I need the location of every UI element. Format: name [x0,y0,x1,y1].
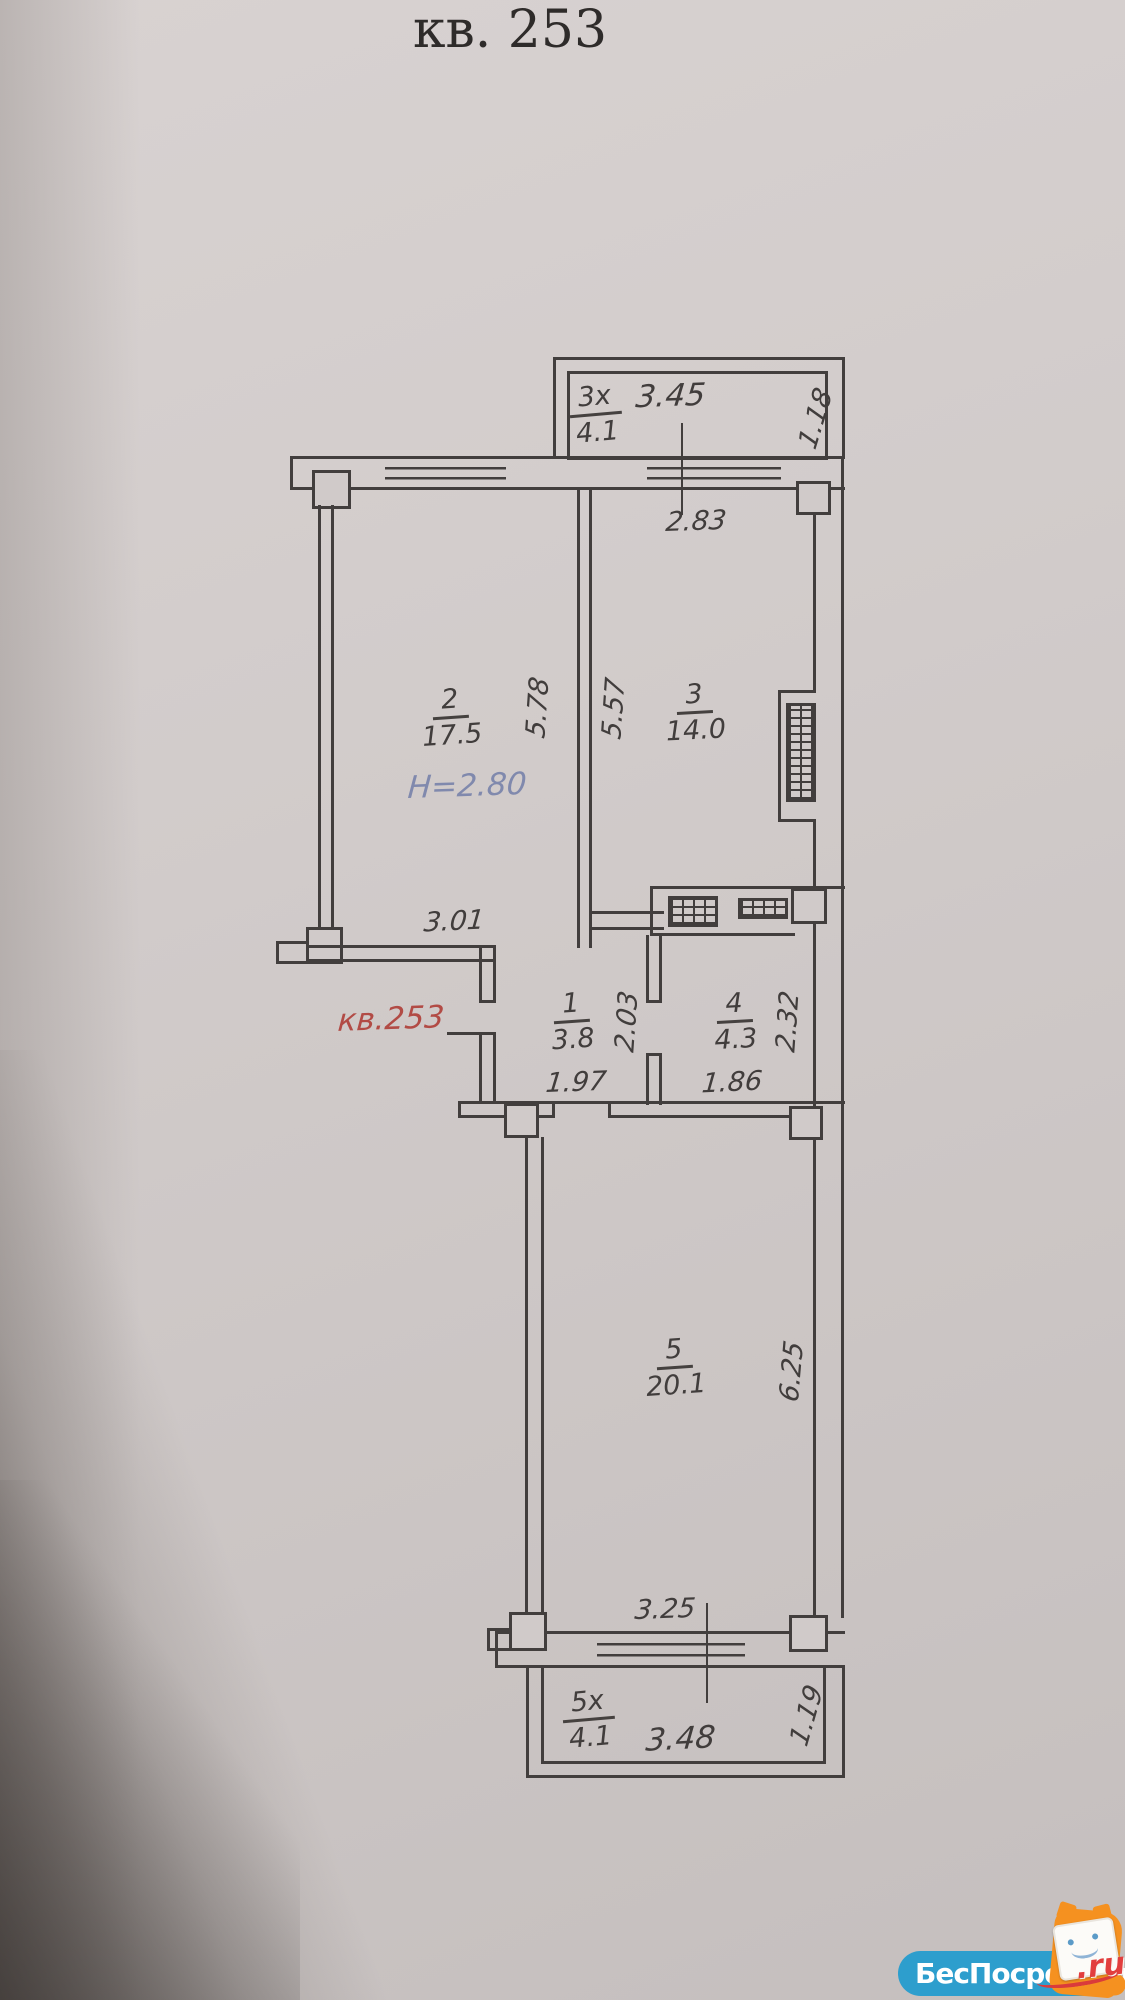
wall-h [526,1775,845,1778]
column [509,1612,547,1651]
balcony-area: 4.1 [563,413,631,450]
room-area: 4.3 [704,1022,768,1057]
wall-v [659,1055,662,1105]
wall-v [290,456,293,490]
door-jamb [552,1101,555,1118]
room-1-label: 1 3.8 [541,988,603,1057]
wall-v [526,1667,529,1777]
wall-v [589,490,592,948]
wall-v [318,505,321,930]
dimension-label: 2.03 [611,984,643,1059]
wall-tab [487,1628,512,1651]
room-area: 20.1 [638,1367,714,1403]
wall-v [331,505,334,930]
wall-v [646,935,649,1002]
room-number: 2 [431,685,468,721]
wall-v [479,1034,482,1104]
wall-v [650,886,653,936]
balcony-bottom-label: 5х 4.1 [553,1685,624,1755]
vent-shaft-grille [786,703,816,802]
column [312,470,351,509]
wall-h [306,945,496,948]
room-4-label: 4 4.3 [702,988,767,1056]
dimension-label: 2.83 [664,507,727,536]
scanned-floorplan-page: кв. 253 3х 4.1 3.45 1.18 2.83 2 17.5 Н=2… [0,0,1125,2000]
wall-h [541,1761,826,1764]
wall-v [646,1055,649,1105]
wall-v [541,1137,544,1615]
wall-h [608,1115,790,1118]
room-area: 3.8 [543,1021,603,1056]
wall-v [823,1666,826,1764]
column [789,1615,828,1652]
dimension-label: 1.97 [544,1068,607,1097]
room-number: 5 [655,1335,692,1371]
wall-v [493,948,496,1002]
room-5-label: 5 20.1 [636,1333,714,1403]
column [791,888,827,924]
ceiling-height-note: Н=2.80 [407,766,528,806]
wall-v [842,357,845,458]
dimension-label: 3.25 [633,1595,696,1624]
wall-h [778,690,816,693]
wall-v [458,1101,461,1118]
window [647,456,781,490]
wall-v [525,1137,528,1615]
wall-v [659,935,662,1002]
door-jamb [479,1000,496,1003]
room-2-label: 2 17.5 [411,683,491,753]
door-jamb [646,1000,662,1003]
wall-v [493,1034,496,1104]
balcony-number: 5х [561,1686,615,1724]
door-jamb [608,1101,611,1118]
wall-v [813,513,816,692]
wall-v [778,690,781,822]
corner-shadow-overlay [0,1050,560,2000]
balcony-area: 4.1 [556,1718,624,1755]
wall-v [553,357,556,458]
wall-tab [276,941,309,964]
dimension-label: 1.86 [701,1067,764,1097]
wall-v [813,822,816,1618]
room-area: 14.0 [661,713,731,748]
room-number: 1 [552,989,589,1025]
dimension-label: 6.25 [776,1334,809,1410]
room-number: 3 [676,680,713,715]
wall-v [841,458,844,1618]
wall-v [577,490,580,948]
room-3-label: 3 14.0 [659,679,730,747]
left-edge-vignette [0,0,140,2000]
column [504,1103,539,1138]
corner-shadow-deep [0,1480,300,2000]
page-title: кв. 253 [350,0,670,60]
wall-v [479,948,482,1002]
wall-h [650,933,795,936]
dimension-label: 5.57 [598,671,630,746]
dimension-label: 5.78 [522,670,554,745]
dim-tick [706,1603,708,1703]
mascot-eye-icon [1092,1933,1099,1940]
apartment-number-mark: кв.253 [337,999,446,1039]
wall-h [306,959,496,962]
vent-grille [738,898,788,919]
dimension-label: 2.32 [772,984,804,1059]
dimension-label: 3.45 [634,380,707,413]
balcony-number: 3х [568,381,622,419]
balcony-top-label: 3х 4.1 [560,380,631,450]
entrance-door-threshold [447,1032,496,1035]
dimension-label: 3.01 [423,906,486,936]
dimension-label: 3.48 [644,1722,716,1757]
wall-v [541,1666,544,1764]
vent-grille [668,896,718,927]
wall-v [842,1667,845,1777]
window [385,456,506,490]
column [789,1106,823,1140]
window [597,1631,745,1668]
wall-h [553,357,845,360]
room-area: 17.5 [413,717,491,754]
watermark-tld: .ru [1074,1946,1125,1987]
room-number: 4 [716,989,753,1024]
column [796,481,831,515]
wall-h [778,819,816,822]
dim-tick [681,423,683,515]
